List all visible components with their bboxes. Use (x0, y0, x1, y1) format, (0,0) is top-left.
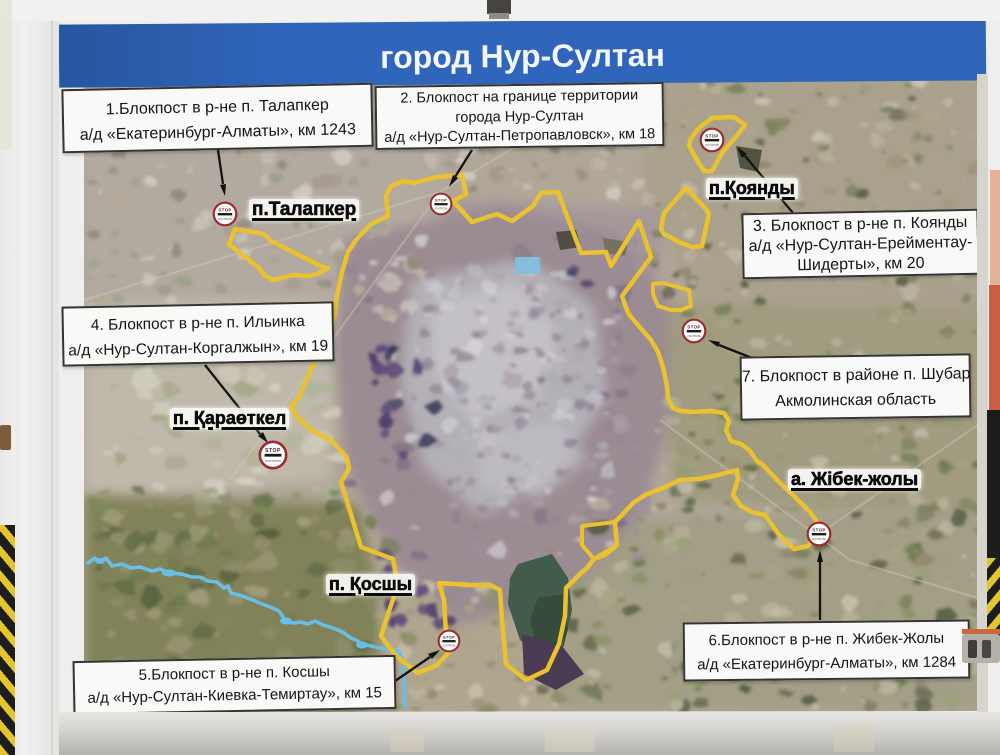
svg-text:КОНТРОЛЬ: КОНТРОЛЬ (265, 459, 281, 463)
svg-text:STOP: STOP (218, 207, 231, 212)
svg-text:КОНТРОЛЬ: КОНТРОЛЬ (435, 207, 448, 210)
svg-text:STOP: STOP (435, 198, 447, 203)
svg-text:STOP: STOP (443, 635, 455, 640)
svg-text:КОНТРОЛЬ: КОНТРОЛЬ (705, 143, 719, 147)
svg-text:STOP: STOP (812, 527, 825, 532)
svg-text:STOP: STOP (705, 133, 718, 138)
svg-text:КОНТРОЛЬ: КОНТРОЛЬ (812, 537, 826, 541)
svg-text:КОНТРОЛЬ: КОНТРОЛЬ (443, 644, 456, 647)
svg-text:STOP: STOP (265, 448, 281, 454)
svg-text:STOP: STOP (687, 324, 700, 329)
svg-text:КОНТРОЛЬ: КОНТРОЛЬ (687, 334, 701, 338)
svg-text:КОНТРОЛЬ: КОНТРОЛЬ (218, 217, 232, 221)
